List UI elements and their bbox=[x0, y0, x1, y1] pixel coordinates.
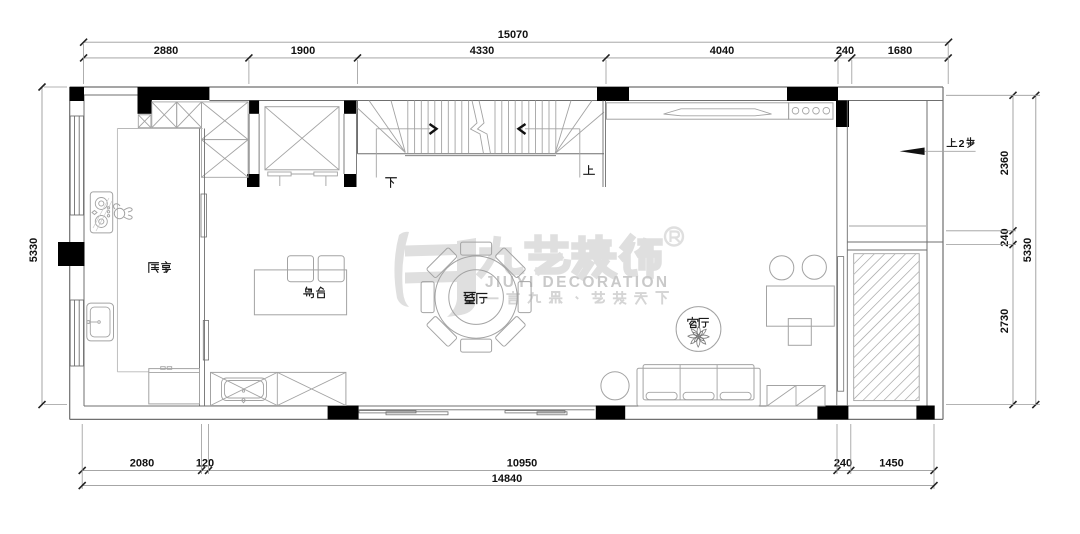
svg-text:5330: 5330 bbox=[28, 238, 40, 262]
svg-text:14840: 14840 bbox=[492, 473, 523, 485]
svg-text:4040: 4040 bbox=[710, 45, 734, 57]
svg-text:2730: 2730 bbox=[999, 309, 1011, 333]
svg-text:2: 2 bbox=[959, 138, 965, 150]
svg-text:120: 120 bbox=[196, 458, 214, 470]
svg-text:1900: 1900 bbox=[291, 45, 315, 57]
svg-text:2360: 2360 bbox=[999, 151, 1011, 175]
svg-text:240: 240 bbox=[834, 458, 852, 470]
svg-text:240: 240 bbox=[836, 45, 854, 57]
svg-text:2080: 2080 bbox=[130, 458, 154, 470]
svg-text:15070: 15070 bbox=[498, 29, 529, 41]
svg-text:JIUYI DECORATION: JIUYI DECORATION bbox=[485, 274, 670, 291]
svg-text:10950: 10950 bbox=[507, 458, 538, 470]
svg-text:1680: 1680 bbox=[888, 45, 912, 57]
svg-text:4330: 4330 bbox=[470, 45, 494, 57]
svg-text:1450: 1450 bbox=[879, 458, 903, 470]
svg-text:2880: 2880 bbox=[154, 45, 178, 57]
svg-text:5330: 5330 bbox=[1022, 238, 1034, 262]
